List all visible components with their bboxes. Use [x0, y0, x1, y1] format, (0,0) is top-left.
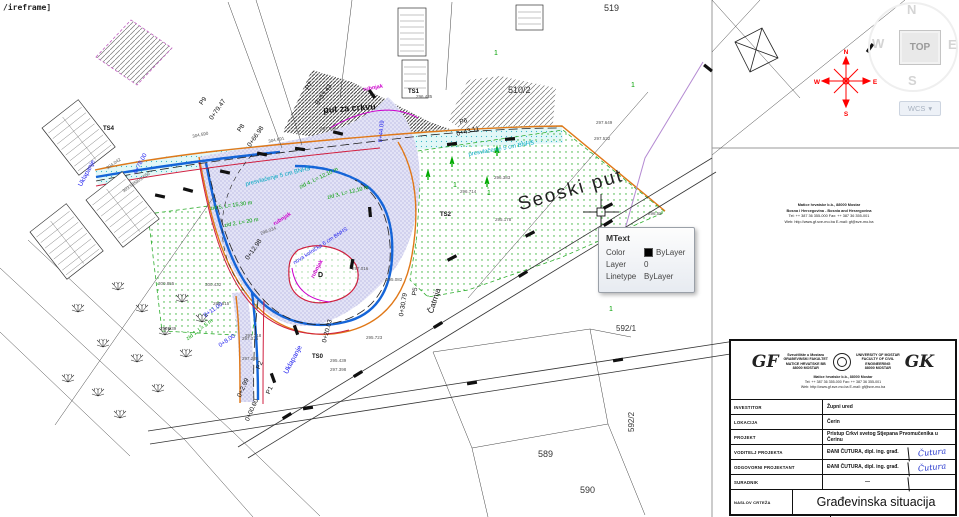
fac-addr-4: Web: http://www.gf.sve-mo.ba E-mail: gf@…	[748, 220, 910, 226]
tb-row-projektant: ODGOVORNI PROJEKTANTĐANI ČUTURA, dipl. i…	[731, 460, 955, 475]
viewcube-west[interactable]: W	[872, 36, 884, 51]
svg-text:N: N	[844, 49, 849, 56]
chevron-down-icon: ▾	[928, 104, 932, 113]
north-arrow-compass	[822, 57, 870, 107]
viewcube-wcs-menu[interactable]: WCS▾	[899, 101, 941, 116]
tb-row-naslov: NASLOV CRTEŽAGrađevinska situacija	[731, 490, 955, 515]
viewcube-east[interactable]: E	[948, 37, 957, 52]
viewcube-north[interactable]: N	[907, 2, 916, 17]
viewcube[interactable]: N W S E TOP WCS▾	[866, 0, 959, 125]
tb-row-suradnik: SURADNIK—	[731, 475, 955, 490]
hatched-parcel	[96, 20, 172, 85]
tb-row-voditelj: VODITELJ PROJEKTAĐANI ČUTURA, dipl. ing.…	[731, 445, 955, 460]
viewcube-south[interactable]: S	[908, 73, 917, 88]
autocad-canvas: NS WE put za crkvuSeoski putČatrnja51951…	[0, 0, 959, 517]
tb-row-investitor: INVESTITORŽupni ured	[731, 400, 955, 415]
tooltip-layer-value: 0	[644, 260, 648, 269]
tb-row-lokacija: LOKACIJAČerin	[731, 415, 955, 430]
tooltip-layer-label: Layer	[606, 260, 644, 269]
command-echo-text: /ireframe]	[3, 3, 51, 12]
university-seal	[833, 353, 851, 371]
rollover-tooltip: MText Color ByLayer Layer 0 Linetype ByL…	[598, 227, 695, 293]
institution-en: UNIVERSITY OF MOSTAR FACULTY OF CIVIL EN…	[856, 353, 900, 371]
tooltip-linetype-value: ByLayer	[644, 272, 673, 281]
svg-text:S: S	[844, 111, 849, 118]
title-block-header: GF Sveučilište u Mostaru GRAĐEVINSKI FAK…	[731, 341, 955, 400]
tb-row-projekt: PROJEKTPristup Crkvi svetog Stjepana Prv…	[731, 430, 955, 445]
tooltip-title: MText	[606, 233, 687, 243]
title-block: GF Sveučilište u Mostaru GRAĐEVINSKI FAK…	[729, 339, 957, 516]
title-block-address: Matice hrvatske b.b., 88000 Mostar Tel: …	[801, 375, 885, 390]
institution-hr: Sveučilište u Mostaru GRAĐEVINSKI FAKULT…	[784, 353, 828, 371]
rotated-structure	[735, 28, 778, 72]
tooltip-color-label: Color	[606, 248, 644, 257]
svg-text:W: W	[814, 79, 821, 86]
wcs-label: WCS	[908, 104, 926, 113]
tooltip-color-value: ByLayer	[656, 248, 685, 257]
faculty-address-block: Matice hrvatske b.b., 88000 Mostar Bosna…	[748, 203, 910, 226]
color-swatch	[644, 248, 653, 257]
gf-logo: GF	[752, 352, 779, 372]
drawing-title: Građevinska situacija	[793, 490, 955, 514]
gk-logo: GK	[905, 352, 934, 372]
tooltip-linetype-label: Linetype	[606, 272, 644, 281]
viewcube-top-face[interactable]: TOP	[899, 30, 941, 65]
